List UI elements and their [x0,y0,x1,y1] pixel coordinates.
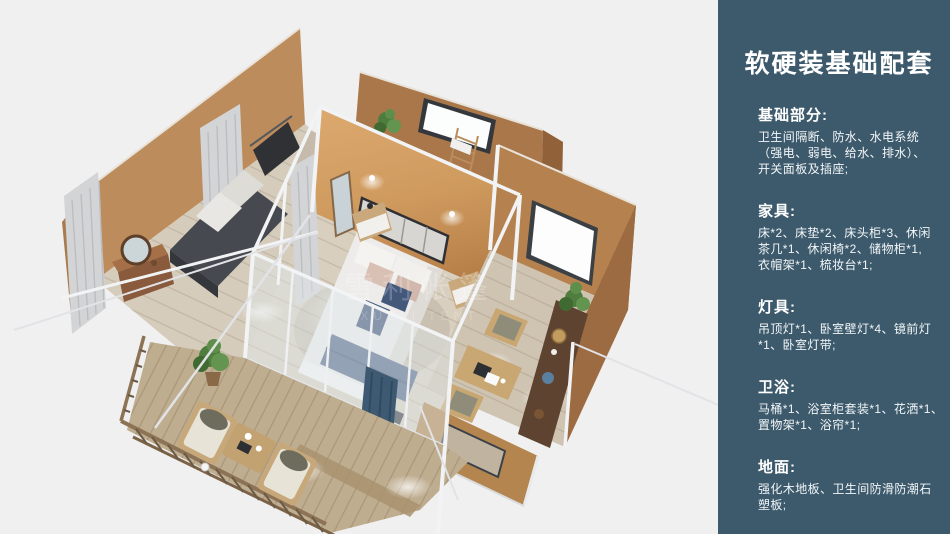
section-lighting: 灯具: 吊顶灯*1、卧室壁灯*4、镜前灯 *1、卧室灯带; [758,296,934,353]
floorplan-3d-render: 雪利帐篷 XUELI TENT [0,0,718,534]
wall-lamp [449,211,455,217]
section-line: 床*2、床垫*2、床头柜*3、休闲 [758,225,934,241]
section-bathroom: 卫浴: 马桶*1、浴室柜套装*1、花洒*1、 置物架*1、浴帘*1; [758,376,934,433]
standing-mirror [331,172,354,236]
svg-text:雪利帐篷: 雪利帐篷 [344,272,496,305]
svg-text:XUELI TENT: XUELI TENT [360,309,479,323]
section-title: 灯具: [758,296,934,317]
section-line: 开关面板及插座; [758,161,934,177]
section-basics: 基础部分: 卫生间隔断、防水、水电系统 （强电、弱电、给水、排水）、 开关面板及… [758,104,934,177]
spec-sidebar: 软硬装基础配套 基础部分: 卫生间隔断、防水、水电系统 （强电、弱电、给水、排水… [718,0,950,534]
section-line: 置物架*1、浴帘*1; [758,417,934,433]
round-mirror [122,236,150,264]
section-line: 塑板; [758,497,934,513]
section-line: 衣帽架*1、梳妆台*1; [758,257,934,273]
section-line: 强化木地板、卫生间防滑防潮石 [758,481,934,497]
sidebar-title: 软硬装基础配套 [744,44,934,80]
section-flooring: 地面: 强化木地板、卫生间防滑防潮石 塑板; [758,456,934,513]
section-line: 茶几*1、休闲椅*2、储物柜*1, [758,241,934,257]
watermark: 雪利帐篷 XUELI TENT [344,272,496,323]
kettle [201,463,209,471]
section-line: 卫生间隔断、防水、水电系统 [758,129,934,145]
section-title: 卫浴: [758,376,934,397]
section-title: 地面: [758,456,934,477]
section-title: 基础部分: [758,104,934,125]
section-line: *1、卧室灯带; [758,337,934,353]
section-line: （强电、弱电、给水、排水）、 [758,145,934,161]
section-line: 马桶*1、浴室柜套装*1、花洒*1、 [758,401,934,417]
section-furniture: 家具: 床*2、床垫*2、床头柜*3、休闲 茶几*1、休闲椅*2、储物柜*1, … [758,200,934,273]
section-line: 吊顶灯*1、卧室壁灯*4、镜前灯 [758,321,934,337]
section-title: 家具: [758,200,934,221]
slide: 雪利帐篷 XUELI TENT 软硬装基础配套 基础部分: 卫生间隔断、防水、水… [0,0,950,534]
wall-lamp [369,175,375,181]
